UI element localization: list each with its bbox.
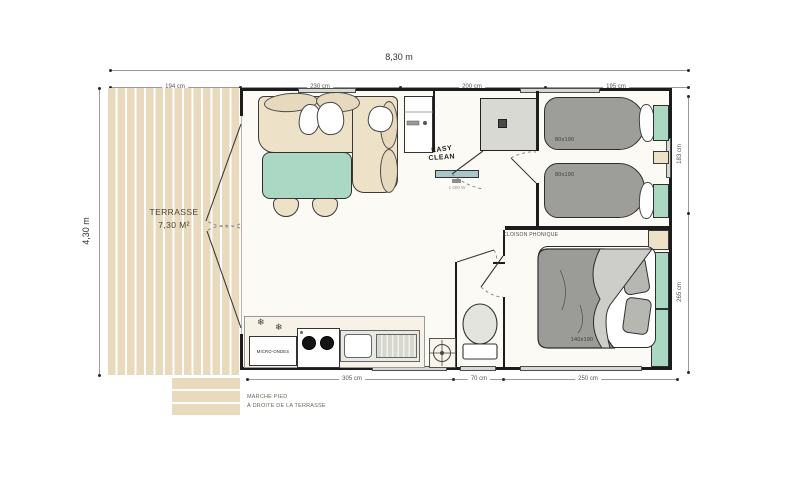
dim-right-segments-line [688,96,689,372]
dim-total-height-label: 4,30 m [81,217,91,245]
dim-tick [687,86,690,89]
terrace-title: TERRASSE [130,206,218,219]
dim-tick [246,378,249,381]
shower-drain [498,119,507,128]
snowflake-icon: ❄ [275,322,283,333]
dim-tick [98,374,101,377]
twin-bed-2-duvet: 80x190 [544,163,645,218]
terrace-door-track [241,116,242,334]
steps-note-line1: MARCHE PIED [247,393,326,402]
dim-bottom-segment-label: 305 cm [339,376,365,382]
washbasin-unit [404,96,433,153]
steps-note-line2: À DROITE DE LA TERRASSE [247,402,326,411]
dim-total-width-label: 8,30 m [385,52,413,62]
hob-knob [300,331,303,334]
microwave: MICRO-ONDES [249,336,297,366]
hob-burner [320,336,334,350]
dim-bottom-segment-label: 70 cm [468,376,490,382]
sink-drainer [376,334,417,358]
wall-master-lower [503,297,505,367]
dim-tick [109,69,112,72]
terrace-decking [108,88,240,375]
wall-twin-room-lower [536,183,539,228]
hob-burner [302,336,316,350]
dim-total-height-line [99,88,100,375]
dim-tick [676,378,679,381]
sofa-cushion [380,149,398,193]
dim-tick [687,371,690,374]
dim-right-segment-label: 183 cm [677,144,683,164]
dim-right-segment-label: 265 cm [677,282,683,302]
dim-tick [502,378,505,381]
dim-bottom-segments-line [247,379,677,380]
window [520,366,642,371]
terrace-step [172,378,240,389]
shower [480,98,537,151]
dim-tick [452,378,455,381]
terrace-step [172,391,240,402]
wall-acoustic-partition [505,226,669,230]
wall-shelf [653,151,669,164]
dim-tick [687,95,690,98]
wall-bathroom-left [433,91,435,152]
floor-plan-canvas: 8,30 m 194 cm 230 cm 200 cm 195 cm 4,30 … [0,0,796,480]
microwave-label: MICRO-ONDES [257,349,289,354]
nightstand [653,105,669,141]
dim-bottom-segment-label: 250 cm [575,376,601,382]
terrace-label: TERRASSE 7,30 M² [130,206,218,232]
dim-total-width-line [110,70,688,71]
twin-bed-1-duvet: 80x190 [544,97,645,150]
coffee-table [262,152,352,199]
window [520,88,600,93]
double-bed-size-label: 140x190 [558,337,606,343]
sink-basin [344,334,372,358]
dim-tick [687,69,690,72]
wall-wc-stub [493,262,505,264]
radiator [435,170,479,178]
snowflake-icon: ❄ [257,317,265,328]
steps-note: MARCHE PIED À DROITE DE LA TERRASSE [247,393,326,411]
terrace-area: 7,30 M² [130,219,218,232]
nightstand [653,184,669,218]
twin-bed-2-size-label: 80x190 [555,172,574,178]
terrace-step [172,404,240,415]
window [460,366,496,371]
easy-clean-label: EASY CLEAN [431,145,456,164]
radiator-bracket [452,179,461,183]
twin-bed-1-size-label: 80x190 [555,137,574,143]
dim-tick [687,212,690,215]
radiator-power-label: 1 000 W [437,185,477,190]
acoustic-partition-label: CLOISON PHONIQUE [503,232,558,238]
water-heater-cupboard [429,338,456,368]
double-bed-pillow [622,296,653,335]
dim-tick [98,87,101,90]
